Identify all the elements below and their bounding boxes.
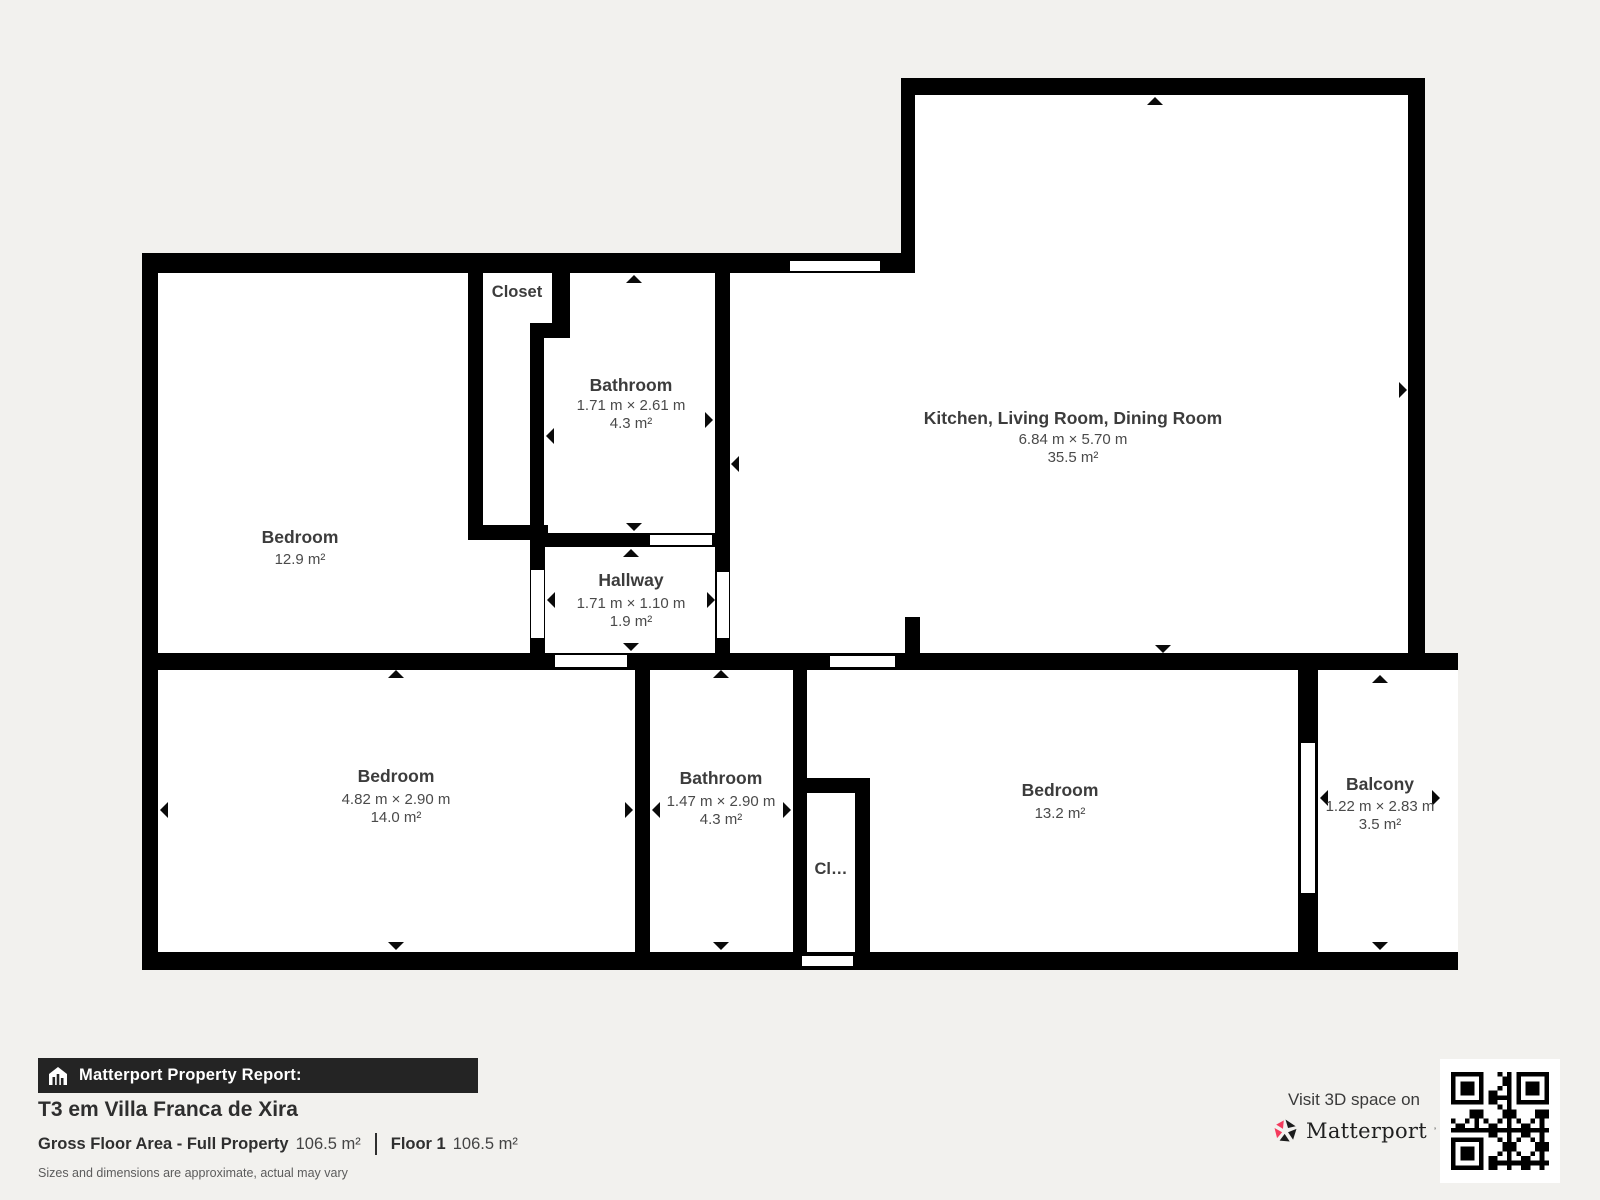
room-label: Kitchen, Living Room, Dining Room xyxy=(924,408,1222,428)
room-area: 13.2 m² xyxy=(1035,805,1086,822)
report-header-bar: Matterport Property Report: xyxy=(38,1058,478,1093)
qr-code-image xyxy=(1451,1072,1549,1170)
brand-trademark: ’ xyxy=(1434,1126,1436,1136)
room-label: Cl… xyxy=(815,860,848,878)
room-dims: 4.82 m × 2.90 m xyxy=(342,791,451,808)
visit-3d-label: Visit 3D space on xyxy=(1244,1090,1464,1110)
room-label: Bathroom xyxy=(590,375,673,395)
window-opening xyxy=(1301,743,1315,893)
room-dims: 1.47 m × 2.90 m xyxy=(667,793,776,810)
room-area: 3.5 m² xyxy=(1359,816,1402,833)
property-title: T3 em Villa Franca de Xira xyxy=(38,1098,298,1122)
door-opening xyxy=(650,535,712,545)
matterport-wordmark: Matterport xyxy=(1306,1119,1427,1143)
room-area: 1.9 m² xyxy=(610,613,653,630)
room-label: Closet xyxy=(492,283,543,301)
floor-value: 106.5 m² xyxy=(453,1135,518,1154)
house-icon xyxy=(48,1066,68,1086)
room-area: 35.5 m² xyxy=(1048,449,1099,466)
divider xyxy=(375,1133,377,1155)
door-opening xyxy=(555,655,627,667)
room-label: Balcony xyxy=(1346,774,1414,794)
matterport-logo-icon xyxy=(1272,1117,1299,1144)
door-opening xyxy=(717,572,729,638)
door-opening xyxy=(531,570,544,638)
gross-floor-area-label: Gross Floor Area - Full Property xyxy=(38,1135,289,1154)
qr-code xyxy=(1440,1059,1560,1183)
room-dims: 1.22 m × 2.83 m xyxy=(1326,798,1435,815)
door-opening xyxy=(830,656,895,667)
report-header-label: Matterport Property Report: xyxy=(79,1066,302,1085)
door-opening xyxy=(802,956,853,966)
disclaimer-text: Sizes and dimensions are approximate, ac… xyxy=(38,1166,348,1180)
room-area: 14.0 m² xyxy=(371,809,422,826)
visit-3d-block: Visit 3D space on Matterport’ xyxy=(1244,1090,1464,1144)
room-label: Bedroom xyxy=(358,766,435,786)
room-label: Hallway xyxy=(598,570,663,590)
room-label: Bedroom xyxy=(1022,780,1099,800)
room-area: 4.3 m² xyxy=(610,415,653,432)
room-dims: 1.71 m × 2.61 m xyxy=(577,397,686,414)
room-dims: 6.84 m × 5.70 m xyxy=(1019,431,1128,448)
room-label: Bathroom xyxy=(680,768,763,788)
area-summary: Gross Floor Area - Full Property 106.5 m… xyxy=(38,1133,518,1155)
door-opening xyxy=(790,261,880,271)
gross-floor-area-value: 106.5 m² xyxy=(296,1135,361,1154)
room-dims: 1.71 m × 1.10 m xyxy=(577,595,686,612)
floor-label: Floor 1 xyxy=(391,1135,446,1154)
room-label: Bedroom xyxy=(262,527,339,547)
room-area: 4.3 m² xyxy=(700,811,743,828)
room-area: 12.9 m² xyxy=(275,551,326,568)
floor-plan: Bedroom 12.9 m² Closet Bathroom 1.71 m ×… xyxy=(0,0,1600,1200)
